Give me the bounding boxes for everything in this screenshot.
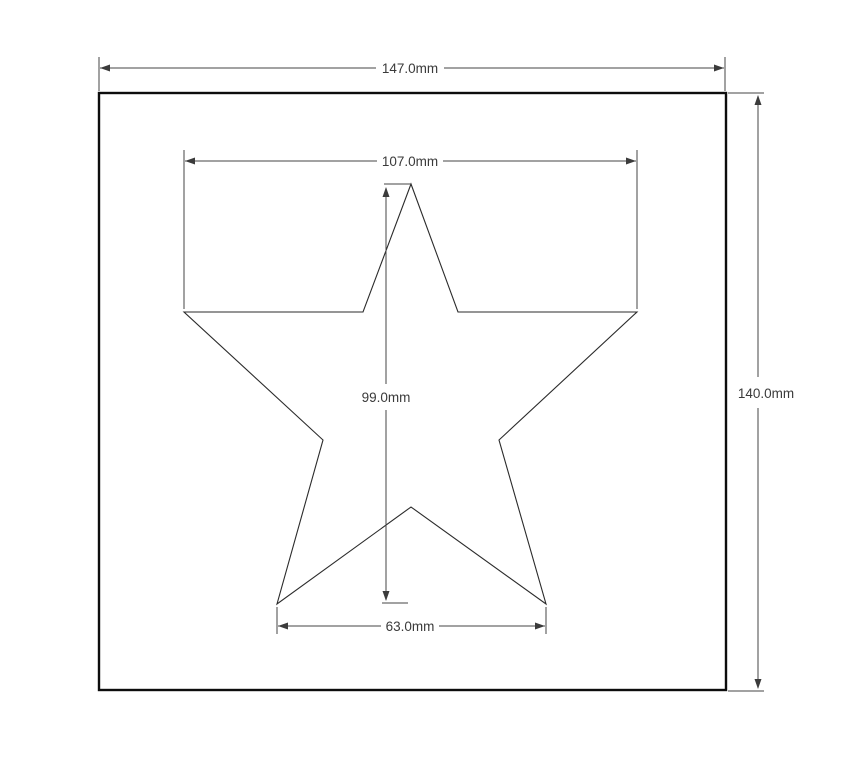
- arrowhead: [535, 623, 545, 630]
- dimension-star-height: 99.0mm: [362, 184, 411, 603]
- arrowhead: [755, 679, 762, 689]
- dimension-drawing: 147.0mm 107.0mm 99.0mm: [0, 0, 842, 770]
- arrowhead: [626, 158, 636, 165]
- arrowhead: [185, 158, 195, 165]
- dimension-label-star-base-width: 63.0mm: [386, 619, 435, 634]
- dimension-star-base-width: 63.0mm: [277, 607, 546, 634]
- arrowhead: [755, 95, 762, 105]
- plate-outline: [99, 93, 726, 690]
- dimension-label-plate-width: 147.0mm: [382, 61, 438, 76]
- arrowhead: [383, 591, 390, 601]
- arrowhead: [714, 65, 724, 72]
- dimension-plate-height: 140.0mm: [728, 93, 794, 691]
- dimension-plate-width: 147.0mm: [99, 57, 725, 91]
- dimension-label-star-width: 107.0mm: [382, 154, 438, 169]
- dimension-star-width: 107.0mm: [184, 150, 637, 309]
- star-cutout-outline: [184, 184, 637, 604]
- technical-drawing-canvas: 147.0mm 107.0mm 99.0mm: [0, 0, 842, 770]
- arrowhead: [278, 623, 288, 630]
- arrowhead: [383, 187, 390, 197]
- dimension-label-star-height: 99.0mm: [362, 390, 411, 405]
- dimension-label-plate-height: 140.0mm: [738, 386, 794, 401]
- arrowhead: [100, 65, 110, 72]
